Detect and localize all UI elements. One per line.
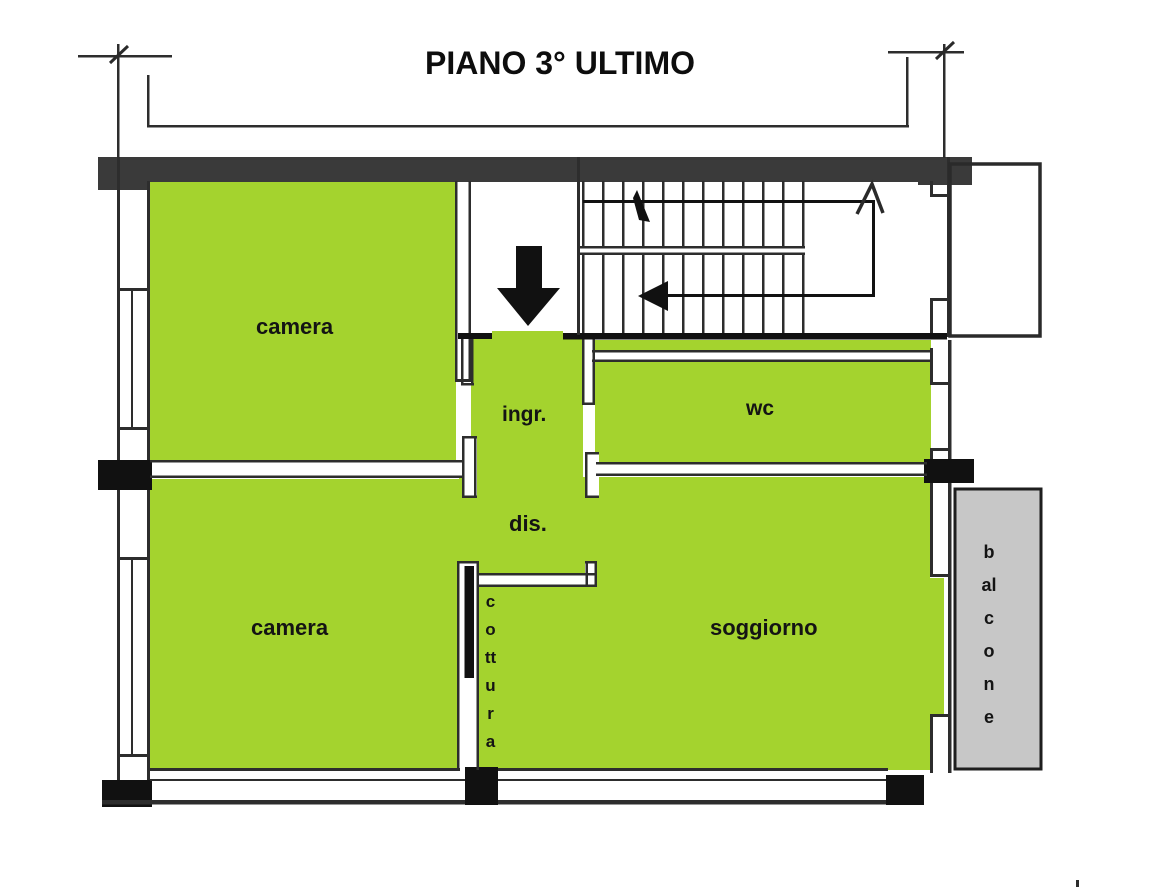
right-wall-pier [924, 459, 974, 483]
room-label-camera-bottom: camera [251, 615, 328, 641]
room-label-balcone: balcone [981, 536, 997, 734]
top-wall [100, 157, 972, 182]
balcony-area [955, 489, 1041, 769]
bottom-right-corner-block [886, 775, 924, 805]
stair-flight-mark [633, 190, 650, 222]
room-label-camera-top: camera [256, 314, 333, 340]
floor-plan: PIANO 3° ULTIMO camera ingr. wc dis. cam… [0, 0, 1157, 895]
bottom-mid-pier [465, 767, 498, 805]
left-wall-pier [98, 460, 152, 490]
room-label-cottura: cottura [483, 588, 498, 756]
stair-arrowhead-up-icon [857, 184, 883, 214]
room-label-ingresso: ingr. [502, 403, 546, 427]
balcony-door-reveal [930, 578, 944, 715]
stair-direction-line-down [658, 294, 875, 297]
stair-direction-line-up [583, 200, 875, 203]
staircase [577, 157, 883, 335]
floorplan-drawing [0, 0, 1157, 895]
room-label-disimpegno: dis. [509, 511, 547, 537]
entrance-arrow-icon [497, 246, 560, 326]
stray-mark [1076, 880, 1079, 887]
cottura-wall-core [465, 566, 475, 678]
stair-treads [582, 181, 805, 333]
entry-door-gap [492, 331, 563, 343]
annex-outline [950, 164, 1040, 336]
room-label-soggiorno: soggiorno [710, 615, 818, 641]
room-label-wc: wc [746, 397, 774, 421]
plan-title: PIANO 3° ULTIMO [400, 45, 720, 82]
